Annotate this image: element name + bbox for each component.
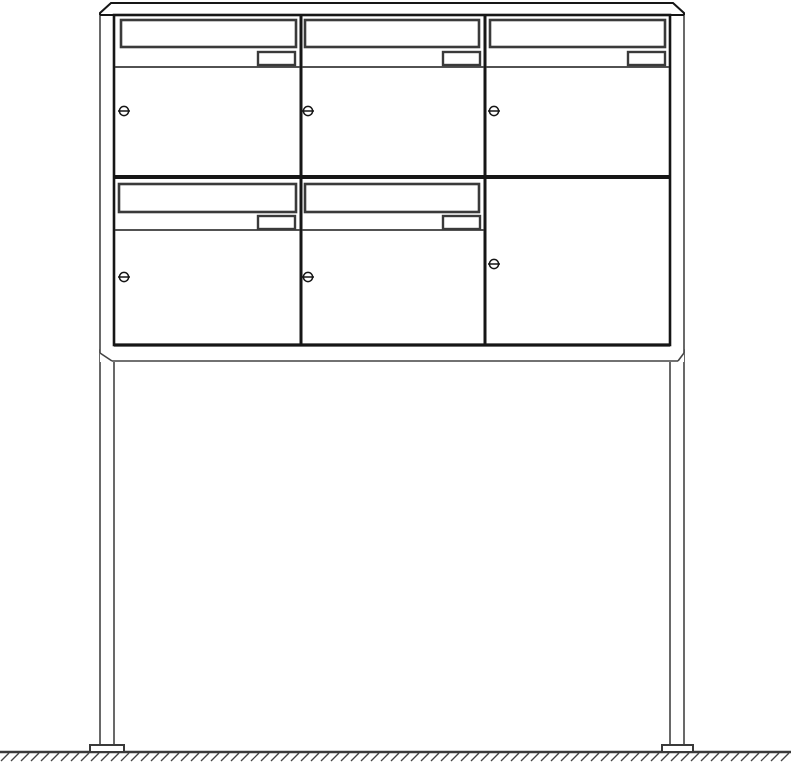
hatch-stroke: [591, 753, 599, 761]
nameplate: [628, 52, 665, 65]
hatch-stroke: [721, 753, 729, 761]
hatch-stroke: [421, 753, 429, 761]
hatch-stroke: [711, 753, 719, 761]
hatch-stroke: [71, 753, 79, 761]
hatch-stroke: [651, 753, 659, 761]
letterbox-cabinet: [100, 0, 684, 362]
hatch-stroke: [141, 753, 149, 761]
hatch-stroke: [531, 753, 539, 761]
ground-hatching: [1, 753, 789, 761]
hatch-stroke: [271, 753, 279, 761]
base-mask: [100, 345, 684, 362]
hatch-stroke: [761, 753, 769, 761]
lock-icon: [302, 106, 314, 115]
support-leg-left: [100, 350, 114, 746]
hatch-stroke: [741, 753, 749, 761]
hatch-stroke: [301, 753, 309, 761]
hatch-stroke: [211, 753, 219, 761]
hatch-stroke: [771, 753, 779, 761]
hatch-stroke: [691, 753, 699, 761]
hatch-stroke: [781, 753, 789, 761]
hatch-stroke: [661, 753, 669, 761]
ground: [0, 752, 791, 761]
hatch-stroke: [11, 753, 19, 761]
hatch-stroke: [341, 753, 349, 761]
nameplate: [258, 216, 295, 229]
hatch-stroke: [331, 753, 339, 761]
hatch-stroke: [291, 753, 299, 761]
hatch-stroke: [571, 753, 579, 761]
nameplate: [258, 52, 295, 65]
hatch-stroke: [631, 753, 639, 761]
hatch-stroke: [261, 753, 269, 761]
hatch-stroke: [621, 753, 629, 761]
hatch-stroke: [481, 753, 489, 761]
hatch-stroke: [461, 753, 469, 761]
lock-icon: [488, 106, 500, 115]
hatch-stroke: [81, 753, 89, 761]
hatch-stroke: [411, 753, 419, 761]
hatch-stroke: [701, 753, 709, 761]
lock-icon: [118, 106, 130, 115]
mail-slot: [305, 184, 479, 212]
hatch-stroke: [311, 753, 319, 761]
hatch-stroke: [381, 753, 389, 761]
hatch-stroke: [671, 753, 679, 761]
mail-slot: [119, 184, 296, 212]
foot-plate-left: [90, 745, 124, 752]
hatch-stroke: [581, 753, 589, 761]
hatch-stroke: [31, 753, 39, 761]
hatch-stroke: [131, 753, 139, 761]
foot-plate-right: [662, 745, 693, 752]
hatch-stroke: [321, 753, 329, 761]
lock-icon: [302, 272, 314, 281]
hatch-stroke: [241, 753, 249, 761]
hatch-stroke: [611, 753, 619, 761]
hatch-stroke: [21, 753, 29, 761]
hatch-stroke: [391, 753, 399, 761]
hatch-stroke: [431, 753, 439, 761]
compartment-bottom-right: [488, 259, 500, 268]
hatch-stroke: [101, 753, 109, 761]
mail-slot: [490, 20, 665, 47]
hatch-stroke: [111, 753, 119, 761]
hatch-stroke: [751, 753, 759, 761]
nameplate: [443, 216, 480, 229]
mailbox-unit-drawing: [0, 0, 791, 762]
hatch-stroke: [51, 753, 59, 761]
mail-slot: [305, 20, 479, 47]
support-legs: [100, 350, 684, 746]
hatch-stroke: [441, 753, 449, 761]
lock-icon: [118, 272, 130, 281]
hatch-stroke: [491, 753, 499, 761]
hatch-stroke: [601, 753, 609, 761]
hatch-stroke: [161, 753, 169, 761]
hatch-stroke: [151, 753, 159, 761]
hatch-stroke: [541, 753, 549, 761]
hatch-stroke: [401, 753, 409, 761]
hatch-stroke: [91, 753, 99, 761]
lock-icon: [488, 259, 500, 268]
hatch-stroke: [451, 753, 459, 761]
hatch-stroke: [181, 753, 189, 761]
roof-panel: [100, 3, 684, 15]
hatch-stroke: [171, 753, 179, 761]
hatch-stroke: [731, 753, 739, 761]
nameplate: [443, 52, 480, 65]
drawing-stage: [0, 0, 791, 762]
hatch-stroke: [561, 753, 569, 761]
hatch-stroke: [351, 753, 359, 761]
hatch-stroke: [681, 753, 689, 761]
hatch-stroke: [121, 753, 129, 761]
hatch-stroke: [511, 753, 519, 761]
hatch-stroke: [501, 753, 509, 761]
hatch-stroke: [221, 753, 229, 761]
hatch-stroke: [371, 753, 379, 761]
hatch-stroke: [191, 753, 199, 761]
hatch-stroke: [641, 753, 649, 761]
front-face: [114, 15, 670, 345]
hatch-stroke: [281, 753, 289, 761]
mail-slot: [121, 20, 296, 47]
support-leg-right: [670, 350, 684, 746]
hatch-stroke: [361, 753, 369, 761]
hatch-stroke: [551, 753, 559, 761]
hatch-stroke: [201, 753, 209, 761]
hatch-stroke: [1, 753, 9, 761]
hatch-stroke: [231, 753, 239, 761]
hatch-stroke: [41, 753, 49, 761]
hatch-stroke: [61, 753, 69, 761]
hatch-stroke: [471, 753, 479, 761]
hatch-stroke: [521, 753, 529, 761]
hatch-stroke: [251, 753, 259, 761]
